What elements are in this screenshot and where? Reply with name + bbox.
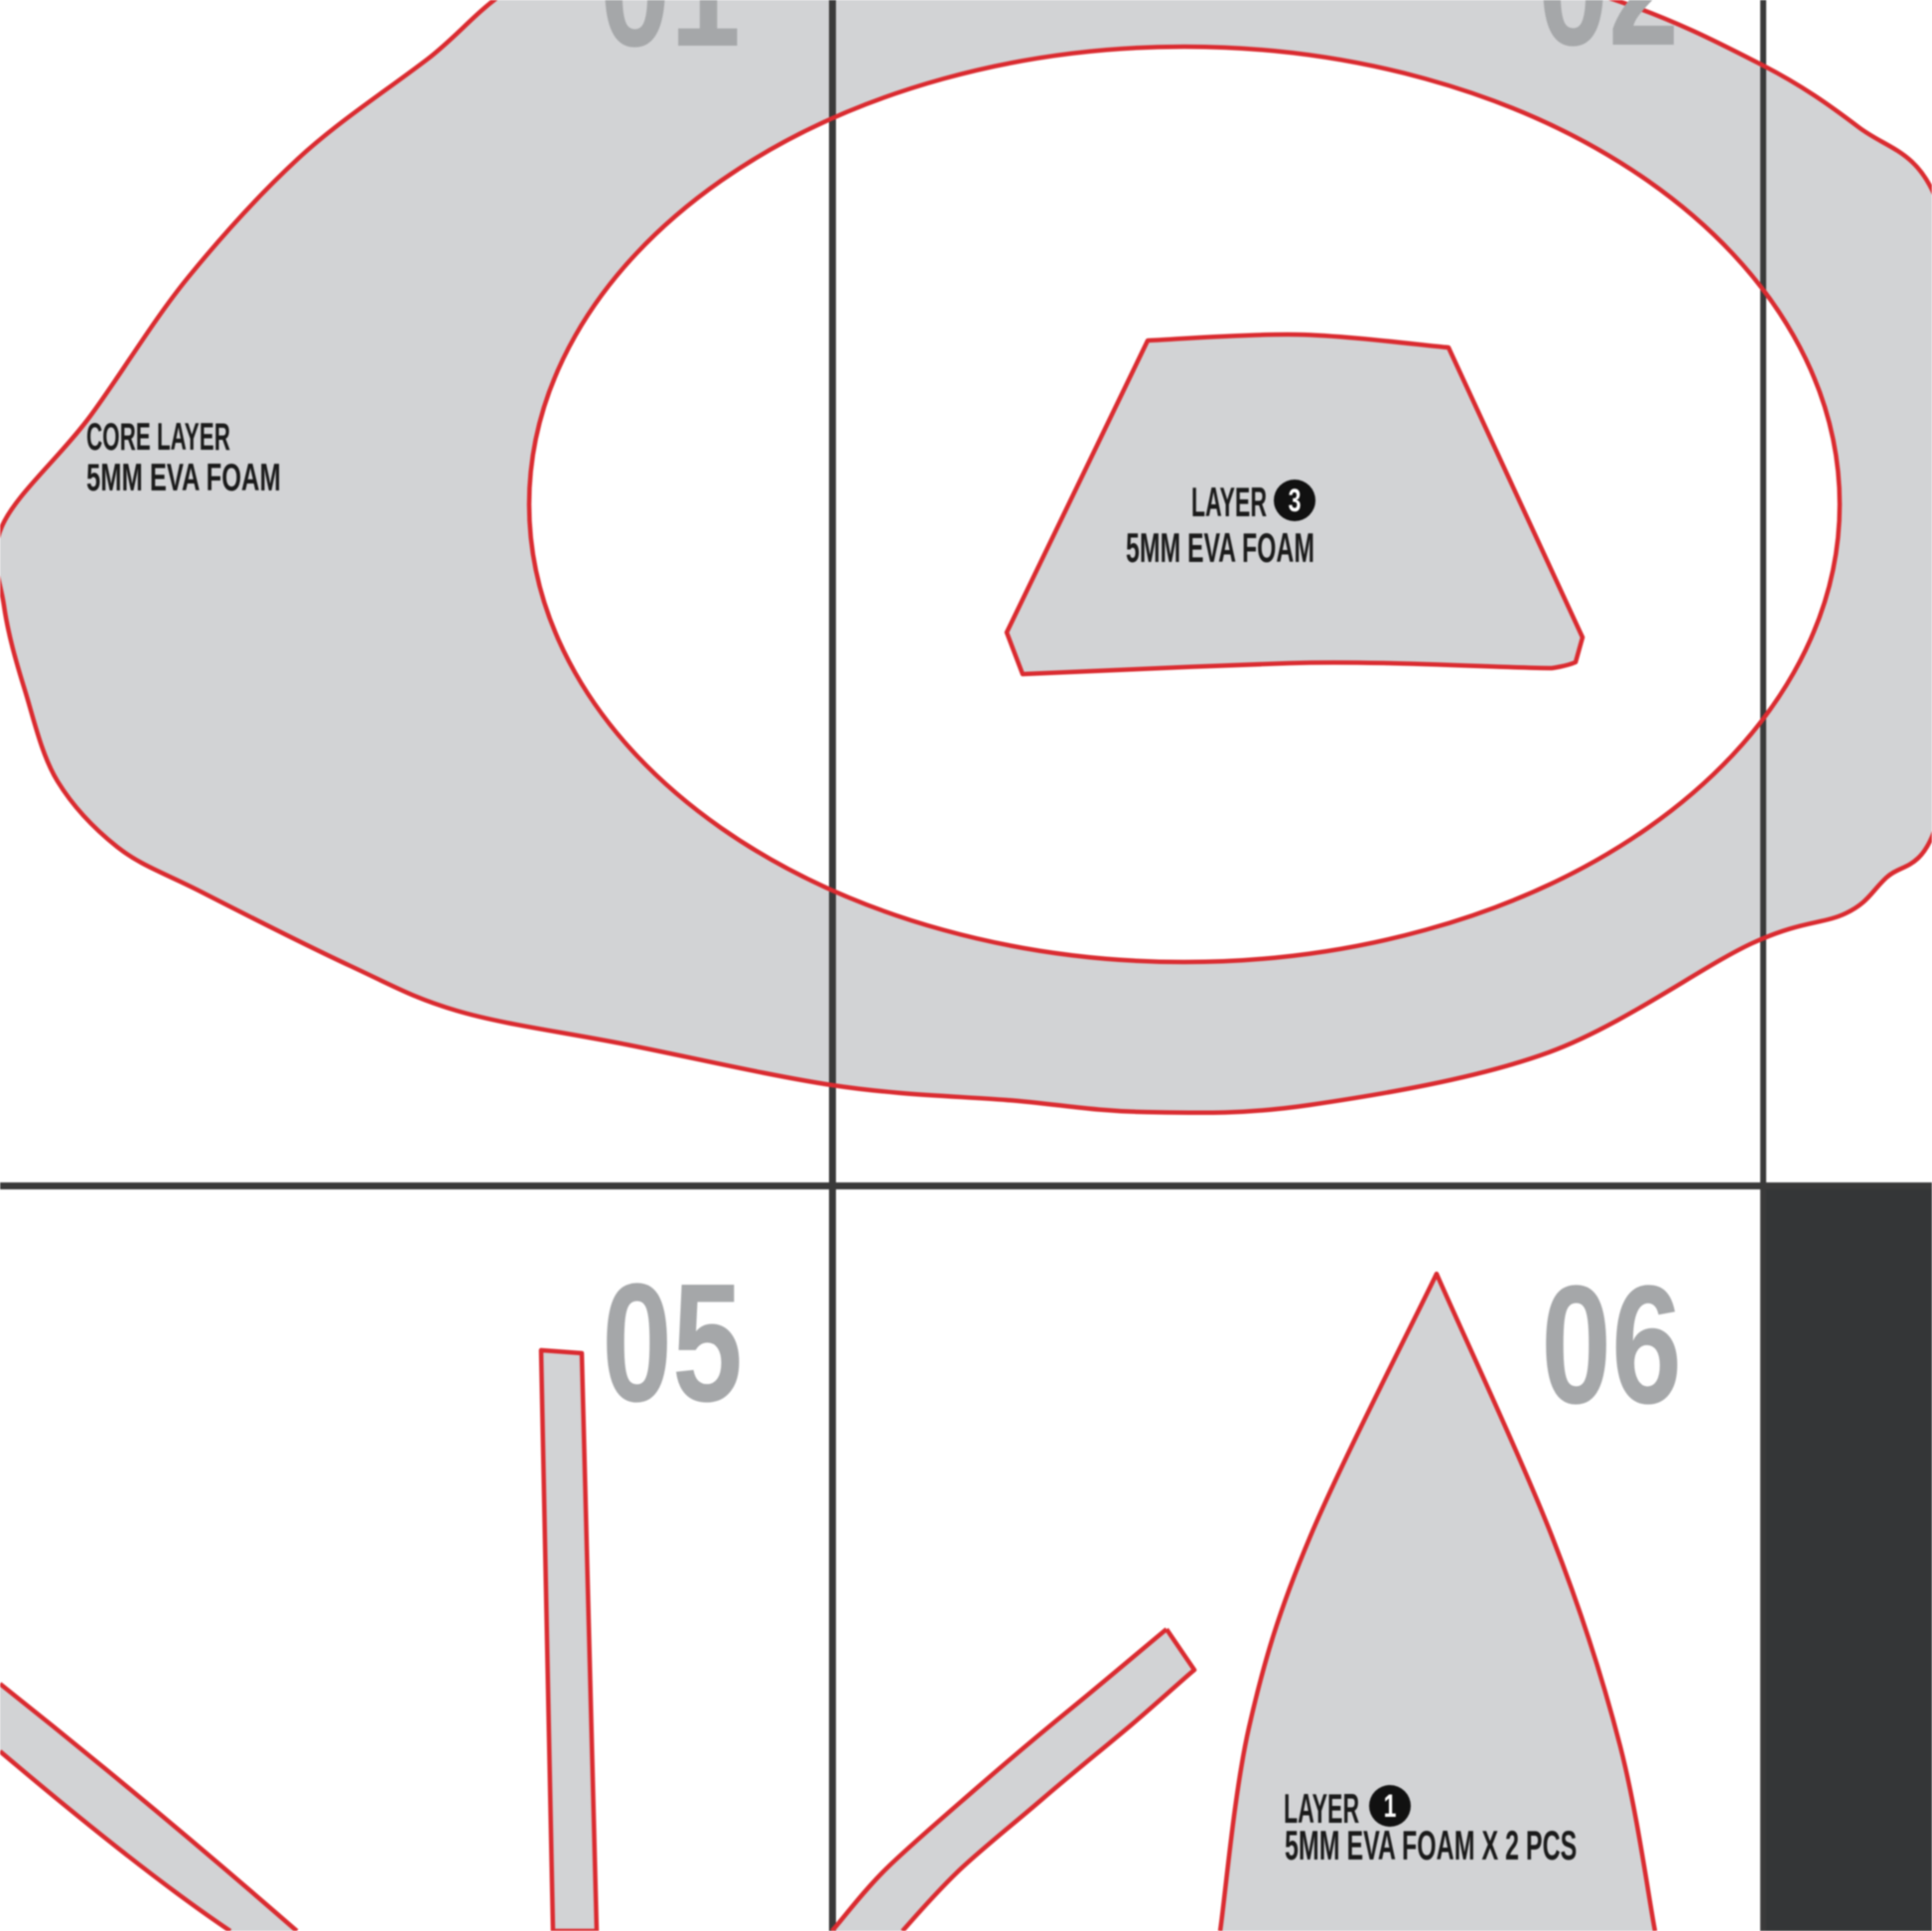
- svg-text:5MM EVA FOAM: 5MM EVA FOAM: [1126, 525, 1314, 571]
- svg-text:CORE LAYER: CORE LAYER: [86, 414, 230, 458]
- svg-text:5MM EVA FOAM: 5MM EVA FOAM: [86, 456, 281, 499]
- svg-text:3: 3: [1289, 483, 1302, 518]
- svg-text:02: 02: [1538, 0, 1679, 80]
- svg-text:5MM EVA FOAM X 2 PCS: 5MM EVA FOAM X 2 PCS: [1285, 1824, 1577, 1869]
- svg-text:1: 1: [1384, 1788, 1397, 1824]
- svg-text:05: 05: [602, 1248, 743, 1437]
- svg-text:06: 06: [1541, 1250, 1682, 1439]
- svg-text:01: 01: [600, 0, 741, 81]
- svg-text:LAYER: LAYER: [1191, 480, 1267, 526]
